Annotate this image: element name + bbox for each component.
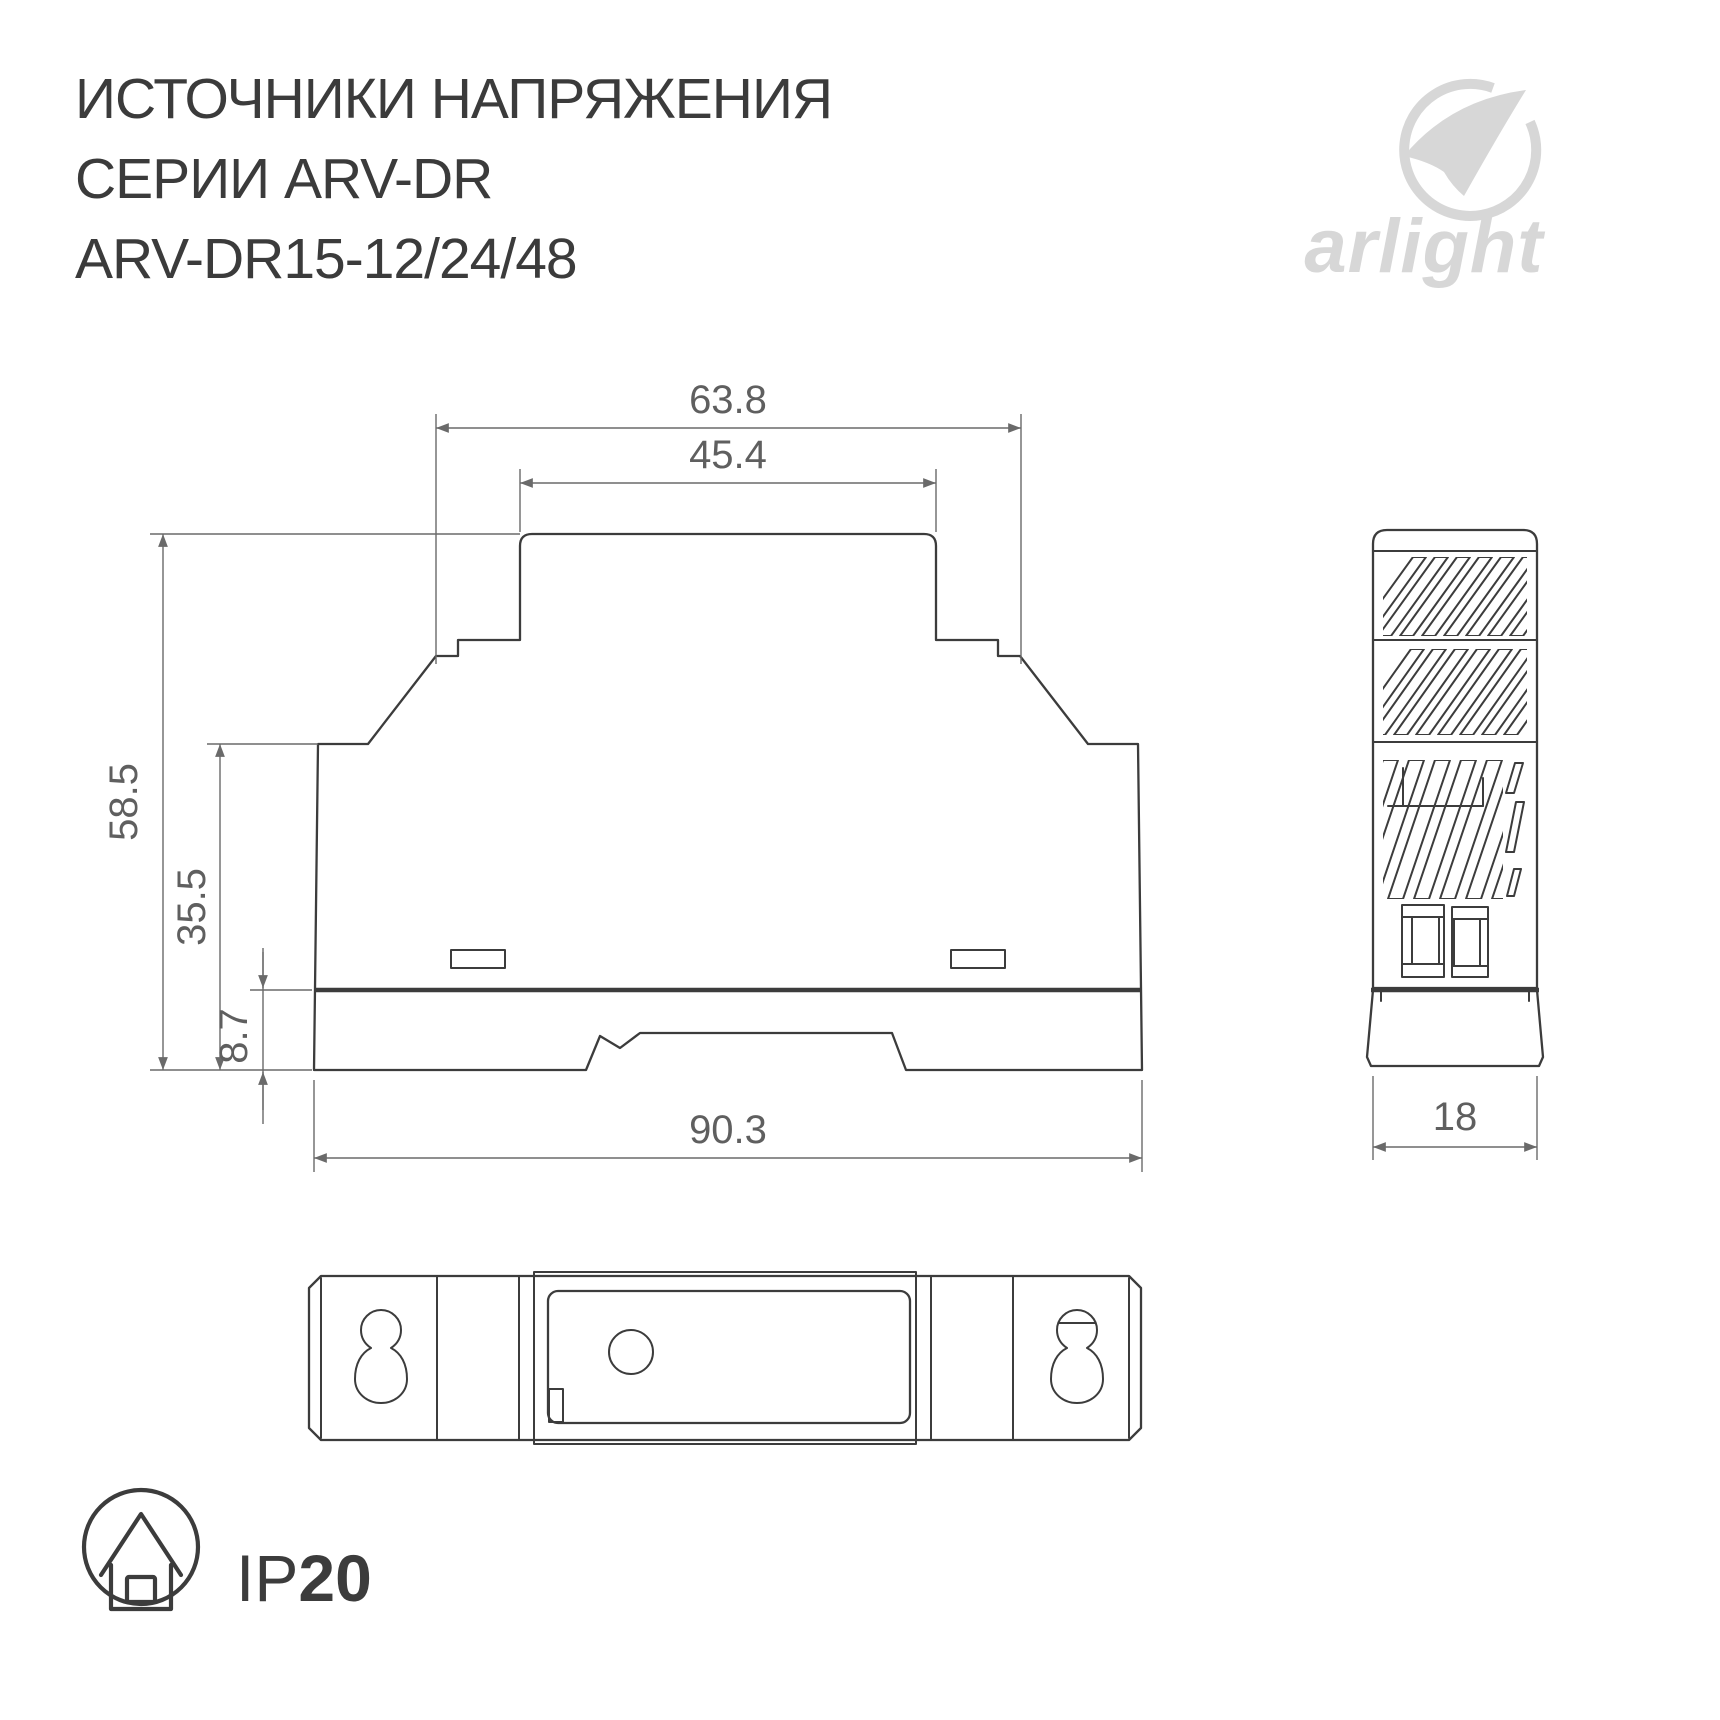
badge-circle-icon (84, 1490, 198, 1604)
keyhole-slot-left (355, 1310, 407, 1403)
brand-text: arlight (1304, 204, 1545, 289)
datasheet-page: ИСТОЧНИКИ НАПРЯЖЕНИЯ СЕРИИ ARV-DR ARV-DR… (0, 0, 1720, 1720)
ip-rating-label: IP20 (236, 1541, 372, 1615)
bottom-hole (609, 1330, 653, 1374)
front-view-drawing (314, 534, 1142, 1070)
ip-prefix: IP (236, 1541, 298, 1615)
title-line-3: ARV-DR15-12/24/48 (75, 227, 577, 291)
side-view-drawing (1336, 530, 1580, 1066)
title-line-2: СЕРИИ ARV-DR (75, 147, 492, 211)
side-view-dimensions: 18 (1373, 1076, 1537, 1160)
bottom-center-panel (548, 1291, 910, 1423)
dim-label-step-width: 63.8 (689, 378, 767, 422)
vent-slats (1336, 760, 1554, 899)
side-base-outline (1367, 990, 1543, 1066)
front-view-dimensions: 63.8 45.4 58.5 35.5 8.7 90.3 (102, 378, 1142, 1172)
dim-label-depth: 18 (1433, 1095, 1478, 1139)
side-vent-band-2 (1350, 649, 1578, 735)
ip20-badge: IP20 (84, 1490, 372, 1615)
side-vent-band-1 (1356, 557, 1580, 636)
title-line-1: ИСТОЧНИКИ НАПРЯЖЕНИЯ (75, 67, 832, 131)
bottom-outline (309, 1276, 1141, 1440)
dim-label-overall-width: 90.3 (689, 1108, 767, 1152)
dim-label-total-height: 58.5 (102, 763, 146, 841)
dim-label-base-height: 8.7 (212, 1008, 256, 1064)
page-title: ИСТОЧНИКИ НАПРЯЖЕНИЯ СЕРИИ ARV-DR ARV-DR… (75, 67, 832, 291)
front-clip-slot-right (951, 950, 1005, 968)
front-clip-slot-left (451, 950, 505, 968)
side-terminal-left (1402, 905, 1444, 977)
dim-label-top-width: 45.4 (689, 433, 767, 477)
vent-slats (1350, 649, 1578, 735)
side-small-slot (1507, 869, 1521, 896)
house-icon (101, 1514, 181, 1609)
side-small-slot (1506, 763, 1523, 793)
side-terminal-right (1452, 907, 1488, 977)
arlight-logo: arlight (1304, 84, 1545, 289)
bottom-view-drawing (309, 1272, 1141, 1444)
side-small-slot (1506, 802, 1524, 852)
dim-label-body-height: 35.5 (170, 868, 214, 946)
side-vent-band-3 (1336, 760, 1554, 899)
ip-value: 20 (298, 1541, 371, 1615)
bottom-notch (549, 1389, 563, 1422)
vent-slats (1356, 557, 1580, 636)
